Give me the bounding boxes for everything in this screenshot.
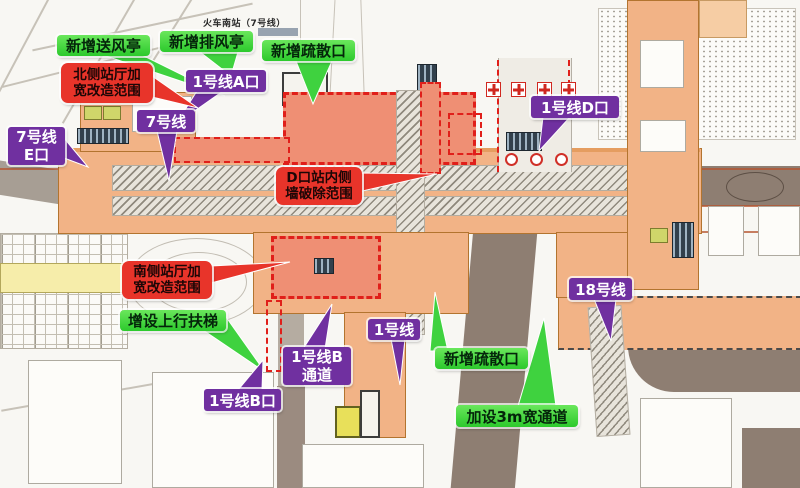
station-note: 火车南站（7号线） bbox=[203, 16, 286, 29]
callout-text: 南侧站厅加 bbox=[133, 264, 201, 280]
callout-text: D口站内侧 bbox=[286, 170, 351, 186]
stair-structure bbox=[360, 390, 380, 438]
building-outline bbox=[640, 120, 686, 152]
callout-text: 宽改造范围 bbox=[73, 83, 141, 99]
east-building-top bbox=[699, 0, 747, 38]
street-line bbox=[360, 0, 364, 95]
callout-text: 通道 bbox=[302, 366, 332, 384]
building-outline bbox=[640, 40, 684, 88]
callout-text: 7号线 bbox=[16, 128, 56, 146]
escalator-block bbox=[77, 128, 129, 144]
escalator-block bbox=[672, 222, 694, 258]
callout-line1-passage-b: 1号线B 通道 bbox=[283, 347, 351, 385]
callout-text: 1号线A口 bbox=[192, 71, 259, 92]
wall-demolition-box bbox=[448, 113, 482, 155]
callout-text: 1号线B bbox=[291, 348, 343, 366]
callout-text: 北侧站厅加 bbox=[73, 67, 141, 83]
callout-line18: 18号线 bbox=[569, 278, 632, 300]
callout-text: 新增疏散口 bbox=[444, 348, 519, 369]
escalator-block bbox=[314, 258, 334, 274]
demolition-dash-line bbox=[497, 60, 499, 172]
callout-text: 1号线 bbox=[374, 319, 414, 340]
callout-line1-exit-b: 1号线B口 bbox=[204, 389, 281, 411]
building-outline bbox=[302, 444, 424, 488]
red-cross-marker bbox=[511, 82, 526, 97]
callout-text: 宽改造范围 bbox=[133, 280, 201, 296]
column-marker bbox=[505, 153, 518, 166]
building-outline bbox=[28, 360, 122, 484]
stair-yellow-block bbox=[335, 406, 361, 438]
callout-text: 新增疏散口 bbox=[271, 40, 346, 61]
callout-new-3m-passage: 加设3m宽通道 bbox=[456, 405, 578, 427]
column-marker bbox=[555, 153, 568, 166]
road-southeast-patch bbox=[742, 428, 800, 488]
site-plan-canvas: 火车南站（7号线） 新增送风亭 新增排风亭 新增疏散口 bbox=[0, 0, 800, 488]
red-cross-marker bbox=[537, 82, 552, 97]
red-cross-marker bbox=[561, 82, 576, 97]
roundabout-outline bbox=[726, 172, 784, 202]
street-line bbox=[0, 0, 49, 110]
escalator-square bbox=[84, 106, 102, 120]
callout-text: 新增排风亭 bbox=[169, 31, 244, 52]
callout-new-exhaust-vent: 新增排风亭 bbox=[160, 31, 253, 52]
road-southeast-curve bbox=[628, 346, 800, 392]
callout-text: 增设上行扶梯 bbox=[128, 310, 218, 331]
callout-text: 加设3m宽通道 bbox=[466, 406, 567, 427]
callout-text: 新增送风亭 bbox=[66, 35, 141, 56]
callout-line7: 7号线 bbox=[137, 110, 195, 132]
small-badge bbox=[258, 28, 298, 36]
exit-b-demolition bbox=[266, 300, 282, 372]
callout-line1: 1号线 bbox=[368, 319, 420, 340]
stair-structure bbox=[708, 206, 744, 256]
callout-new-evac-exit-south: 新增疏散口 bbox=[435, 348, 528, 369]
callout-text: 7号线 bbox=[146, 111, 186, 132]
callout-text: 墙破除范围 bbox=[285, 186, 353, 202]
rail-platform bbox=[0, 263, 124, 293]
column-marker bbox=[530, 153, 543, 166]
callout-north-hall-widening: 北侧站厅加 宽改造范围 bbox=[61, 63, 153, 103]
callout-new-up-escalator: 增设上行扶梯 bbox=[120, 310, 226, 331]
escalator-block bbox=[506, 132, 542, 151]
callout-text: E口 bbox=[24, 146, 49, 164]
callout-line1-exit-d: 1号线D口 bbox=[531, 96, 619, 118]
callout-d-exit-wall-demolition: D口站内侧 墙破除范围 bbox=[276, 167, 362, 205]
callout-text: 18号线 bbox=[575, 279, 626, 300]
callout-text: 1号线D口 bbox=[541, 97, 609, 118]
north-widening-extension bbox=[174, 137, 290, 163]
callout-text: 1号线B口 bbox=[209, 390, 276, 411]
stair-structure bbox=[758, 206, 800, 256]
callout-line7-exit-e: 7号线 E口 bbox=[8, 127, 65, 165]
callout-new-evac-exit-north: 新增疏散口 bbox=[262, 40, 355, 61]
callout-new-supply-vent: 新增送风亭 bbox=[57, 35, 150, 56]
building-outline bbox=[640, 398, 732, 488]
road-b-exit-south bbox=[277, 386, 305, 488]
red-cross-marker bbox=[486, 82, 501, 97]
escalator-square bbox=[650, 228, 668, 243]
callout-south-hall-widening: 南侧站厅加 宽改造范围 bbox=[122, 261, 212, 299]
escalator-square bbox=[103, 106, 121, 120]
callout-line1-exit-a: 1号线A口 bbox=[186, 70, 266, 92]
wall-demolition-strip bbox=[420, 82, 441, 174]
